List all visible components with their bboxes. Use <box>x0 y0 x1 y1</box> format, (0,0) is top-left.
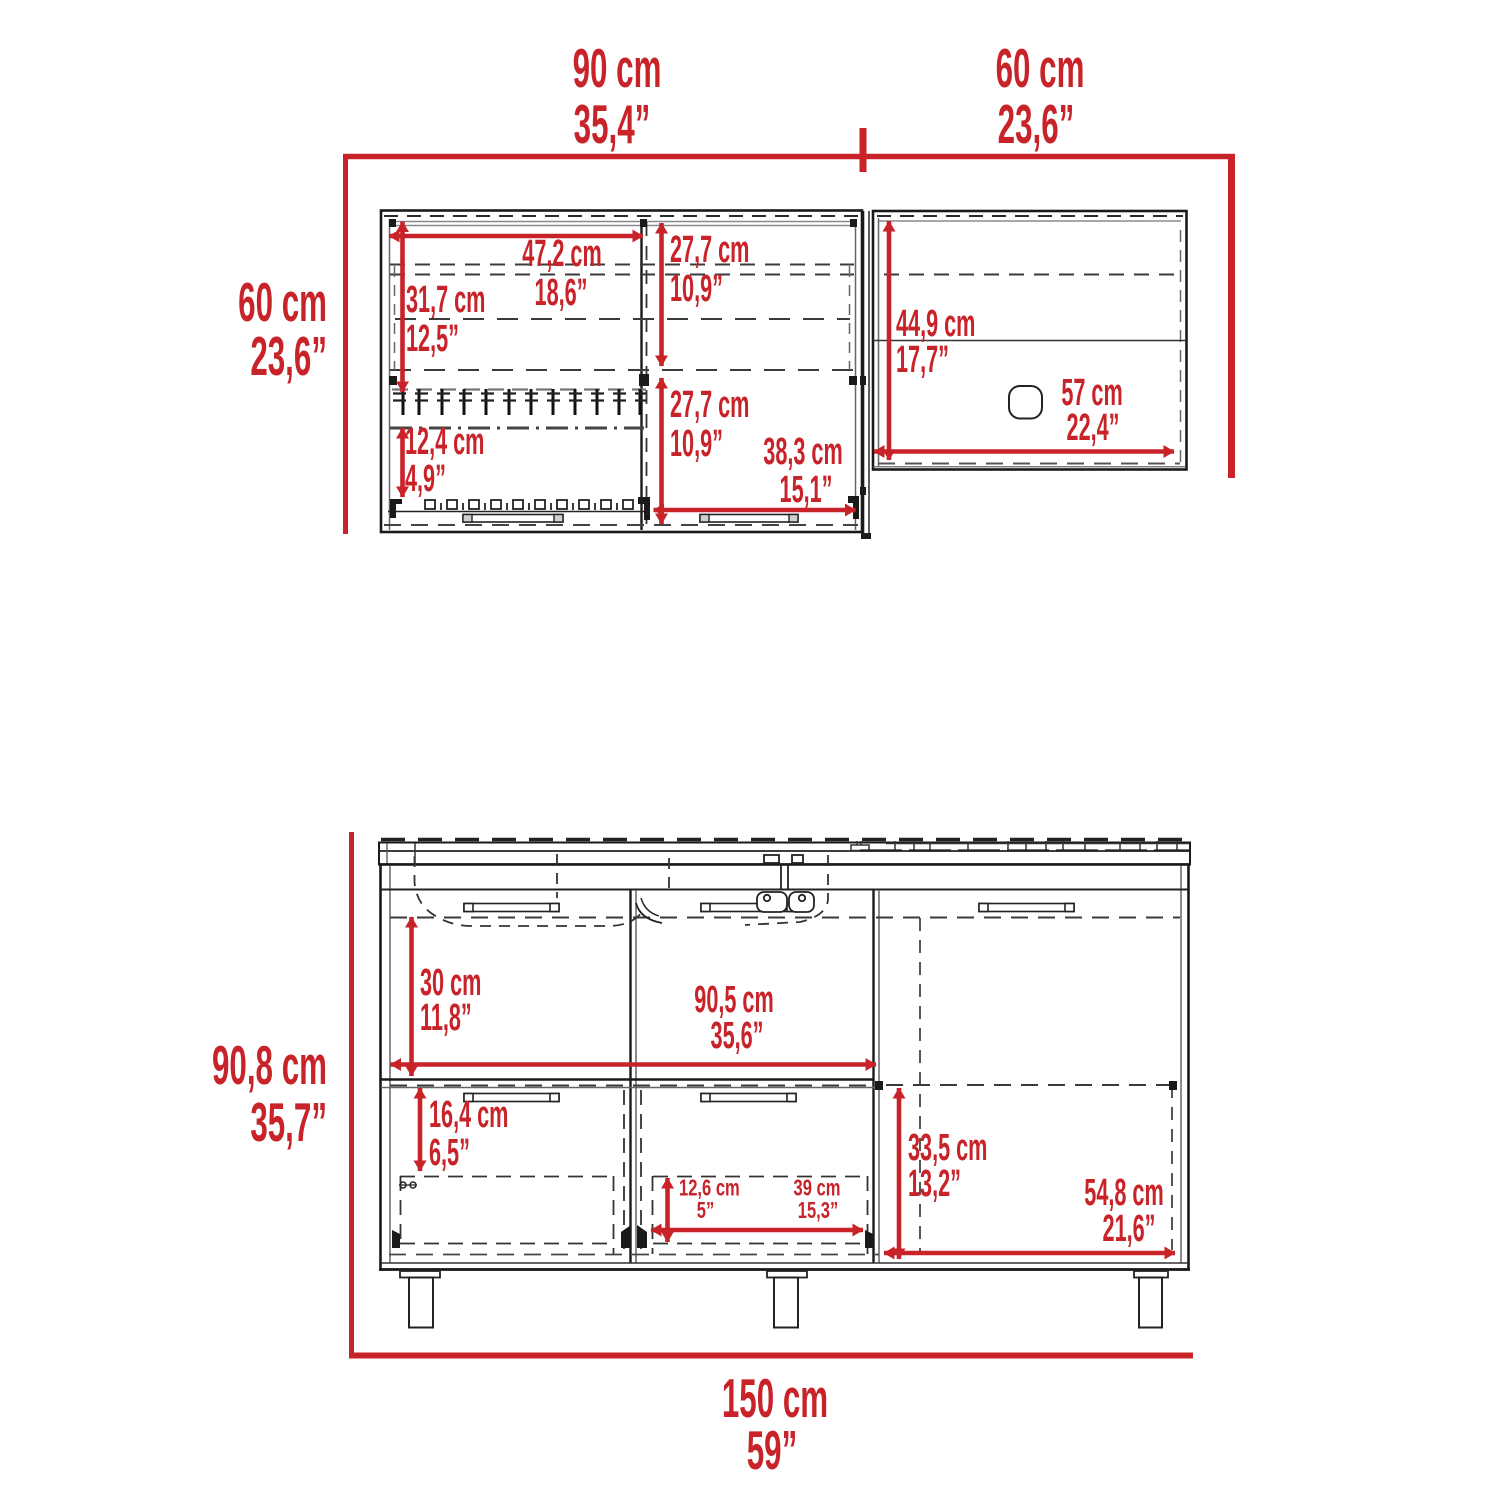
svg-text:90 cm: 90 cm <box>573 38 662 99</box>
svg-text:12,6 cm: 12,6 cm <box>679 1176 740 1201</box>
svg-text:35,6”: 35,6” <box>711 1014 764 1057</box>
svg-text:60 cm: 60 cm <box>238 272 327 333</box>
svg-text:12,5”: 12,5” <box>406 317 459 360</box>
svg-text:38,3 cm: 38,3 cm <box>763 430 842 473</box>
svg-text:22,4”: 22,4” <box>1067 406 1120 449</box>
svg-text:21,6”: 21,6” <box>1103 1207 1156 1250</box>
svg-text:35,7”: 35,7” <box>250 1092 327 1153</box>
svg-text:11,8”: 11,8” <box>420 996 472 1039</box>
svg-text:15,3”: 15,3” <box>798 1198 839 1223</box>
svg-text:10,9”: 10,9” <box>670 422 723 465</box>
svg-text:59”: 59” <box>747 1420 798 1481</box>
svg-text:31,7 cm: 31,7 cm <box>406 278 485 321</box>
svg-text:23,6”: 23,6” <box>250 326 327 387</box>
svg-text:39 cm: 39 cm <box>794 1176 841 1201</box>
svg-text:4,9”: 4,9” <box>405 457 446 500</box>
svg-text:27,7 cm: 27,7 cm <box>670 228 749 271</box>
svg-text:60 cm: 60 cm <box>996 38 1085 99</box>
svg-text:90,8 cm: 90,8 cm <box>212 1035 327 1096</box>
svg-text:35,4”: 35,4” <box>574 94 651 155</box>
svg-text:47,2 cm: 47,2 cm <box>522 232 601 275</box>
svg-text:15,1”: 15,1” <box>780 468 833 511</box>
svg-text:13,2”: 13,2” <box>908 1162 961 1205</box>
svg-text:27,7 cm: 27,7 cm <box>670 383 749 426</box>
svg-text:10,9”: 10,9” <box>670 267 723 310</box>
svg-text:6,5”: 6,5” <box>429 1131 470 1174</box>
svg-text:5”: 5” <box>697 1198 714 1223</box>
svg-text:17,7”: 17,7” <box>896 338 949 381</box>
svg-text:23,6”: 23,6” <box>998 94 1075 155</box>
svg-text:18,6”: 18,6” <box>535 271 588 314</box>
svg-text:16,4 cm: 16,4 cm <box>429 1093 508 1136</box>
